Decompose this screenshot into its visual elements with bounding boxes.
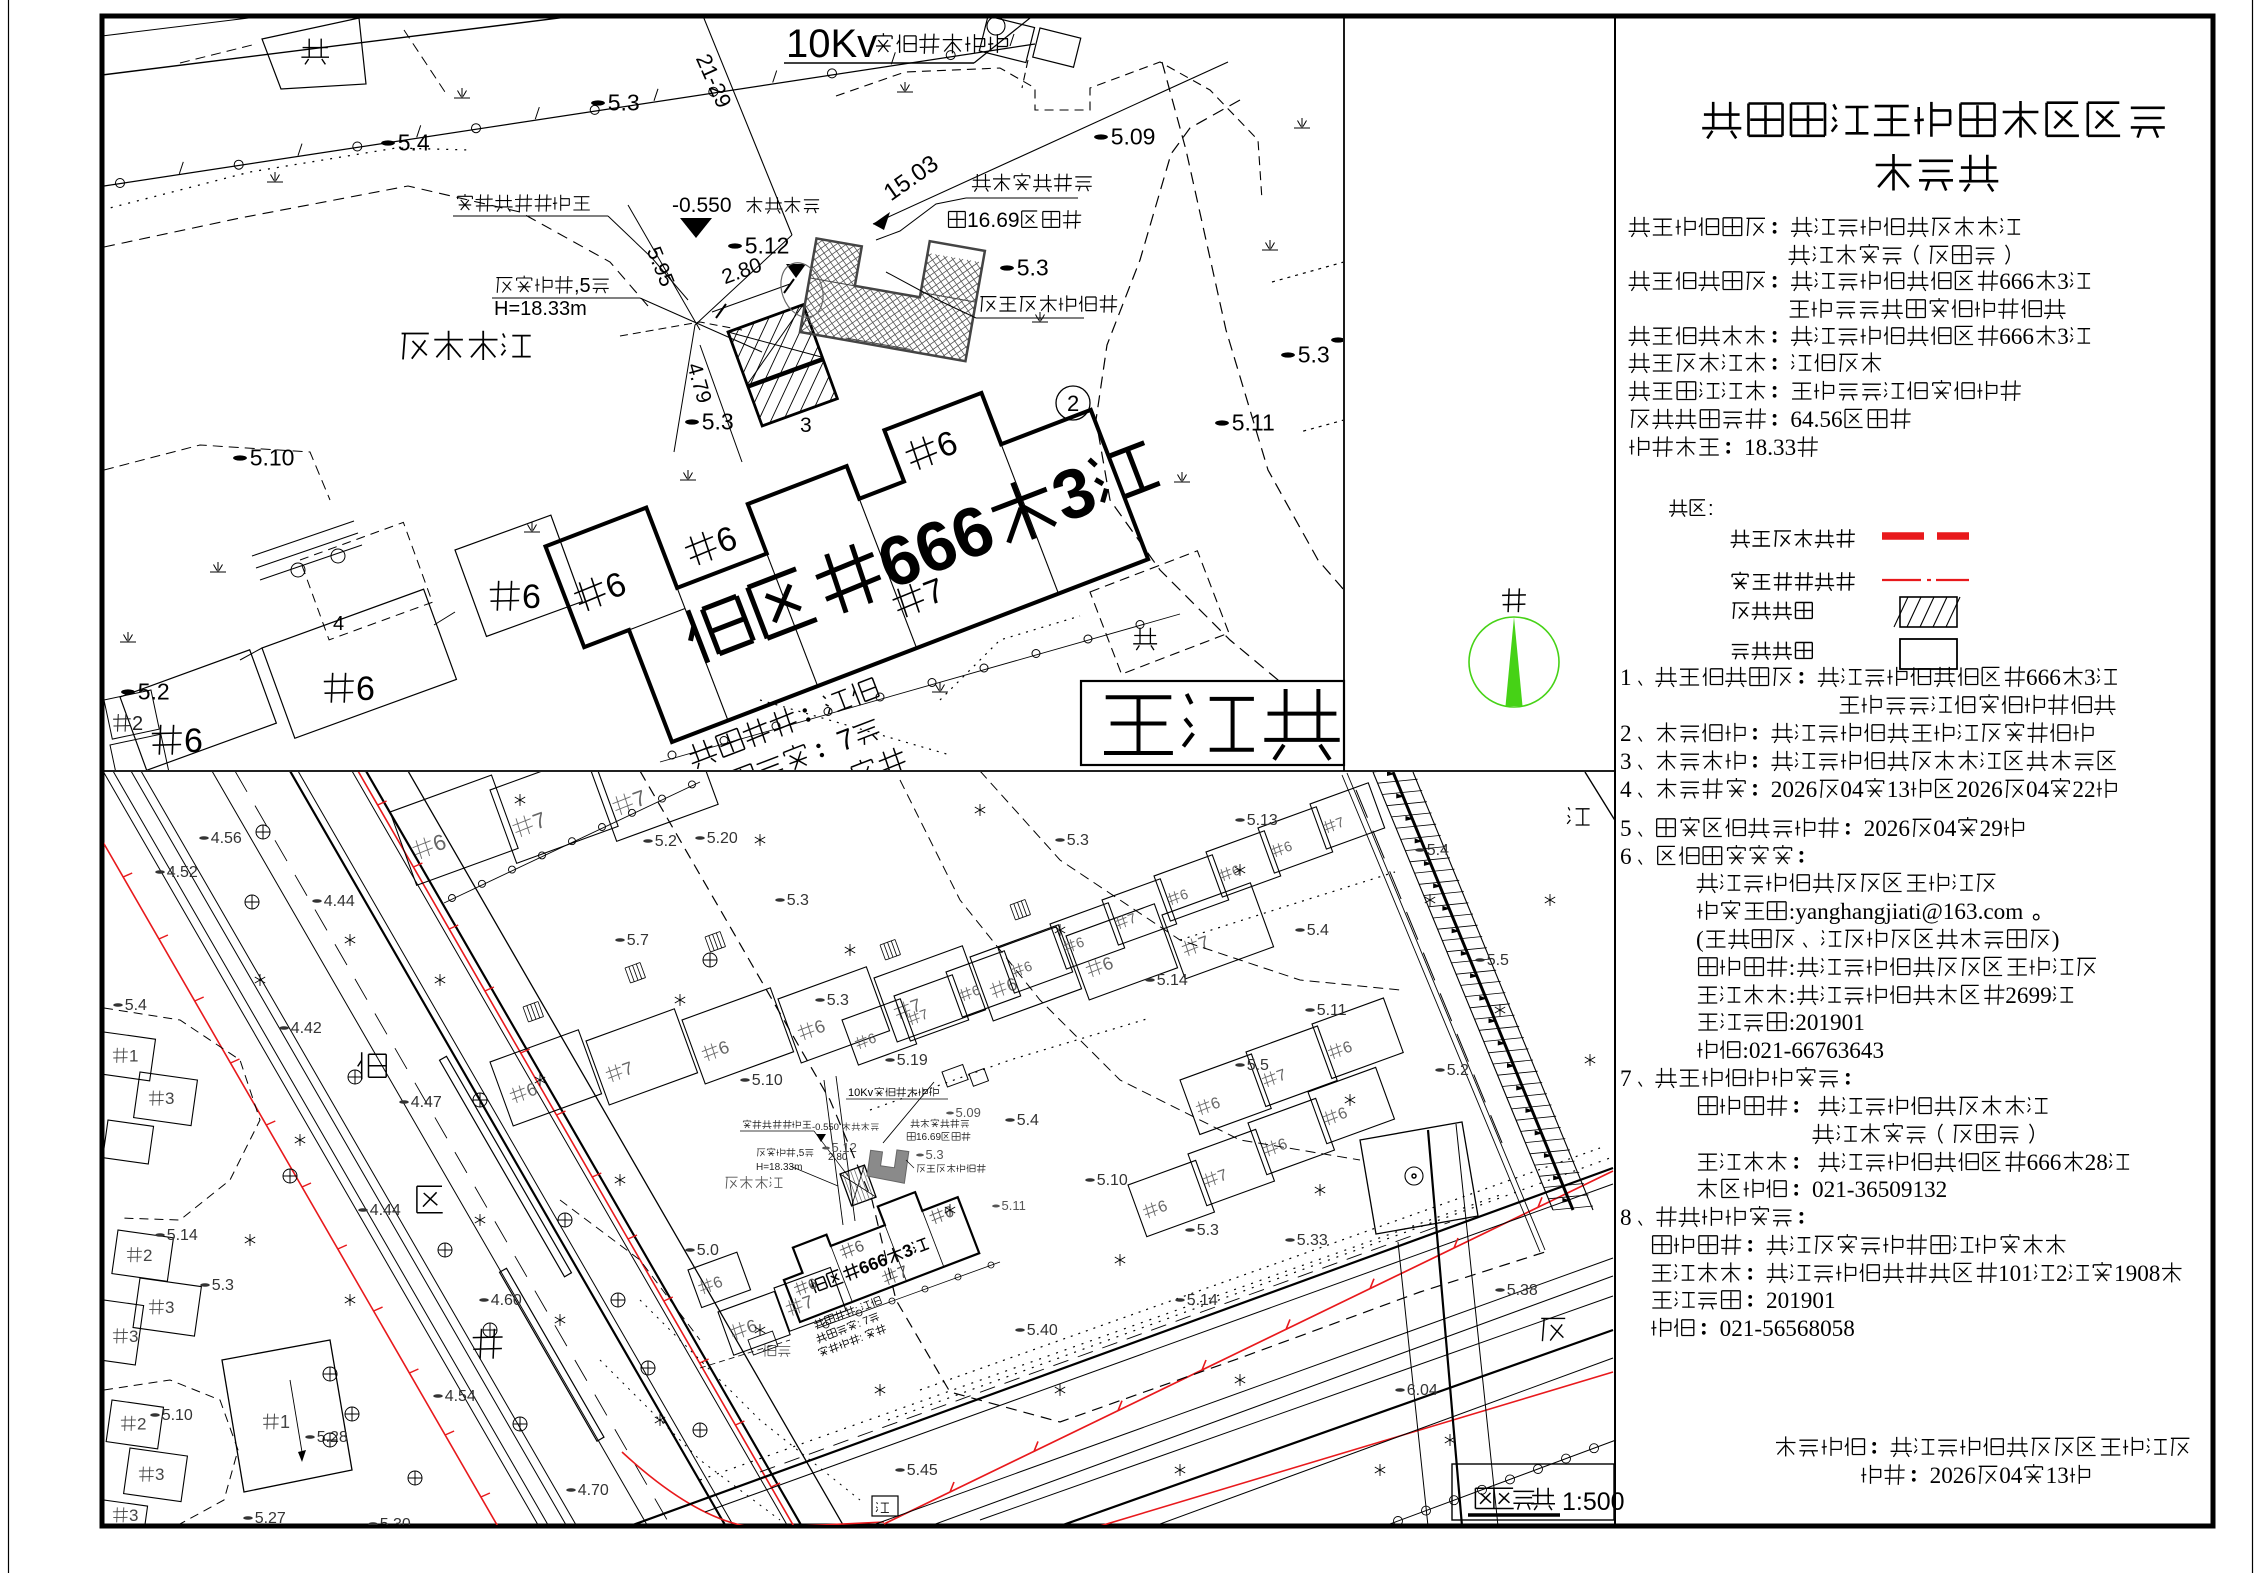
svg-text:2: 2 — [143, 1246, 152, 1265]
svg-text:5.38: 5.38 — [1507, 1282, 1538, 1299]
svg-text:2: 2 — [1067, 391, 1079, 416]
svg-text:5: 5 — [1620, 816, 1632, 842]
svg-text:3: 3 — [165, 1298, 174, 1317]
svg-text:5.12: 5.12 — [832, 1140, 857, 1155]
svg-text:5.11: 5.11 — [1232, 409, 1275, 435]
svg-text:4.44: 4.44 — [324, 893, 355, 910]
svg-text:2: 2 — [1620, 721, 1632, 747]
svg-text:1: 1 — [1620, 665, 1632, 691]
svg-text:3: 3 — [129, 1506, 138, 1525]
svg-text:29: 29 — [1980, 816, 2003, 842]
svg-text:5.09: 5.09 — [956, 1105, 981, 1120]
svg-text:6.04: 6.04 — [1407, 1382, 1438, 1399]
svg-text:5.5: 5.5 — [1487, 952, 1509, 969]
svg-text:4: 4 — [1620, 777, 1632, 803]
svg-text:5.10: 5.10 — [162, 1407, 193, 1424]
svg-text:2: 2 — [2056, 1261, 2068, 1287]
svg-text:64.56: 64.56 — [1790, 407, 1842, 433]
svg-text:,5: ,5 — [796, 1148, 805, 1159]
svg-text:666: 666 — [1999, 269, 2034, 295]
svg-text:4.42: 4.42 — [291, 1020, 322, 1037]
svg-text:3: 3 — [800, 414, 812, 437]
svg-text:1: 1 — [129, 1046, 138, 1065]
svg-text:5.2: 5.2 — [138, 678, 170, 704]
svg-text:,5: ,5 — [574, 275, 591, 297]
svg-text:5.40: 5.40 — [1027, 1322, 1058, 1339]
svg-text:3: 3 — [2084, 665, 2096, 691]
svg-text:): ) — [2052, 927, 2060, 953]
svg-text:4.56: 4.56 — [211, 830, 242, 847]
svg-text:10Kv: 10Kv — [786, 22, 877, 66]
svg-text:3: 3 — [2057, 269, 2069, 295]
svg-text:666: 666 — [2026, 665, 2061, 691]
svg-text:021-36509132: 021-36509132 — [1812, 1177, 1947, 1203]
svg-text:1: 1 — [280, 1412, 290, 1432]
svg-text:3: 3 — [1620, 749, 1632, 775]
svg-text:5.3: 5.3 — [926, 1147, 944, 1162]
svg-text:201901: 201901 — [1766, 1288, 1836, 1314]
svg-text::201901: :201901 — [1789, 1010, 1865, 1036]
svg-text:2026: 2026 — [1864, 816, 1910, 842]
svg-text:1:500: 1:500 — [1562, 1488, 1625, 1516]
svg-text:4.52: 4.52 — [167, 864, 198, 881]
svg-text:2: 2 — [137, 1414, 146, 1433]
svg-text:H=18.33m: H=18.33m — [494, 298, 587, 320]
svg-text:5.33: 5.33 — [1297, 1232, 1328, 1249]
svg-text:5.45: 5.45 — [907, 1462, 938, 1479]
svg-text:04: 04 — [1840, 777, 1864, 803]
svg-text:04: 04 — [1999, 1463, 2023, 1489]
svg-text:2: 2 — [132, 713, 143, 735]
svg-text:5.0: 5.0 — [697, 1242, 719, 1259]
svg-text:5.3: 5.3 — [787, 892, 809, 909]
svg-text:5.20: 5.20 — [707, 830, 738, 847]
svg-text:5.3: 5.3 — [1197, 1222, 1219, 1239]
svg-text:5.09: 5.09 — [1111, 123, 1156, 149]
svg-text:5.3: 5.3 — [702, 408, 734, 434]
svg-text:666: 666 — [1999, 324, 2034, 350]
svg-text:5.19: 5.19 — [897, 1052, 928, 1069]
svg-text:5.4: 5.4 — [125, 997, 147, 1014]
svg-text:021-56568058: 021-56568058 — [1720, 1316, 1855, 1342]
svg-text:5.3: 5.3 — [1298, 341, 1330, 367]
svg-text:5.4: 5.4 — [1427, 842, 1449, 859]
svg-text:6: 6 — [1620, 844, 1632, 870]
svg-text:5.14: 5.14 — [1187, 1292, 1218, 1309]
svg-text:-0.550: -0.550 — [672, 194, 732, 217]
svg-text:101: 101 — [1998, 1261, 2033, 1287]
svg-text:7: 7 — [1620, 1066, 1632, 1092]
svg-text:3: 3 — [165, 1089, 174, 1108]
svg-text:13: 13 — [2046, 1463, 2069, 1489]
svg-text:5.10: 5.10 — [1097, 1172, 1128, 1189]
svg-text::: : — [1789, 955, 1795, 981]
svg-text:10Kv: 10Kv — [848, 1087, 874, 1099]
svg-text:5.11: 5.11 — [1317, 1002, 1347, 1019]
svg-text:-0.550: -0.550 — [812, 1122, 839, 1133]
svg-text:16.69: 16.69 — [967, 209, 1020, 232]
svg-text:(: ( — [1696, 927, 1704, 953]
svg-text:5.27: 5.27 — [255, 1510, 286, 1527]
svg-text:3: 3 — [155, 1465, 164, 1484]
svg-text::: : — [1708, 498, 1714, 520]
svg-text:4.44: 4.44 — [370, 1202, 401, 1219]
svg-text:8: 8 — [1620, 1205, 1632, 1231]
svg-text:2026: 2026 — [1771, 777, 1817, 803]
svg-text:5.11: 5.11 — [1002, 1198, 1026, 1213]
svg-text:5.5: 5.5 — [1247, 1057, 1269, 1074]
svg-text:18.33: 18.33 — [1744, 435, 1796, 461]
svg-text:04: 04 — [1933, 816, 1957, 842]
svg-text:16.69: 16.69 — [916, 1132, 941, 1143]
svg-text:4: 4 — [333, 613, 344, 635]
svg-text:22: 22 — [2072, 777, 2095, 803]
svg-text:2699: 2699 — [2005, 983, 2051, 1009]
svg-text:6: 6 — [184, 722, 203, 760]
svg-text::021-66763643: :021-66763643 — [1742, 1038, 1884, 1064]
svg-text:4.54: 4.54 — [445, 1388, 476, 1405]
svg-text:5.12: 5.12 — [745, 232, 790, 258]
svg-text:H=18.33m: H=18.33m — [756, 1162, 802, 1173]
svg-text:5.14: 5.14 — [167, 1227, 198, 1244]
svg-text:5.3: 5.3 — [827, 992, 849, 1009]
svg-text:5.4: 5.4 — [1017, 1112, 1039, 1129]
svg-text:5.4: 5.4 — [1307, 922, 1329, 939]
svg-text:1908: 1908 — [2114, 1261, 2160, 1287]
svg-text:2026: 2026 — [1930, 1463, 1976, 1489]
svg-text:5.2: 5.2 — [1447, 1062, 1469, 1079]
svg-text:5.2: 5.2 — [655, 833, 677, 850]
svg-text:5.13: 5.13 — [1247, 812, 1278, 829]
svg-text:6: 6 — [356, 670, 375, 708]
svg-text:2026: 2026 — [1956, 777, 2002, 803]
svg-text:3: 3 — [129, 1327, 138, 1346]
svg-text::: : — [1789, 983, 1795, 1009]
svg-text:5.3: 5.3 — [608, 89, 640, 115]
svg-text:5.3: 5.3 — [1067, 832, 1089, 849]
svg-text:4.47: 4.47 — [411, 1094, 442, 1111]
svg-text:5.14: 5.14 — [1157, 972, 1188, 989]
svg-text:4.70: 4.70 — [578, 1482, 609, 1499]
svg-text:04: 04 — [2026, 777, 2050, 803]
svg-text:5.4: 5.4 — [398, 129, 430, 155]
svg-text:5.10: 5.10 — [250, 444, 295, 470]
svg-text:13: 13 — [1887, 777, 1910, 803]
svg-text:5.10: 5.10 — [752, 1072, 783, 1089]
svg-text:3: 3 — [2057, 324, 2069, 350]
svg-text:28: 28 — [2085, 1150, 2108, 1176]
svg-text:4.60: 4.60 — [491, 1292, 522, 1309]
svg-text:666: 666 — [2027, 1150, 2062, 1176]
svg-text::yanghangjiati@163.com: :yanghangjiati@163.com — [1789, 899, 2024, 925]
svg-text:5.28: 5.28 — [317, 1429, 348, 1446]
svg-text:5.7: 5.7 — [627, 932, 649, 949]
svg-text:5.3: 5.3 — [212, 1277, 234, 1294]
svg-text:6: 6 — [522, 578, 541, 616]
svg-text:5.3: 5.3 — [1017, 254, 1049, 280]
